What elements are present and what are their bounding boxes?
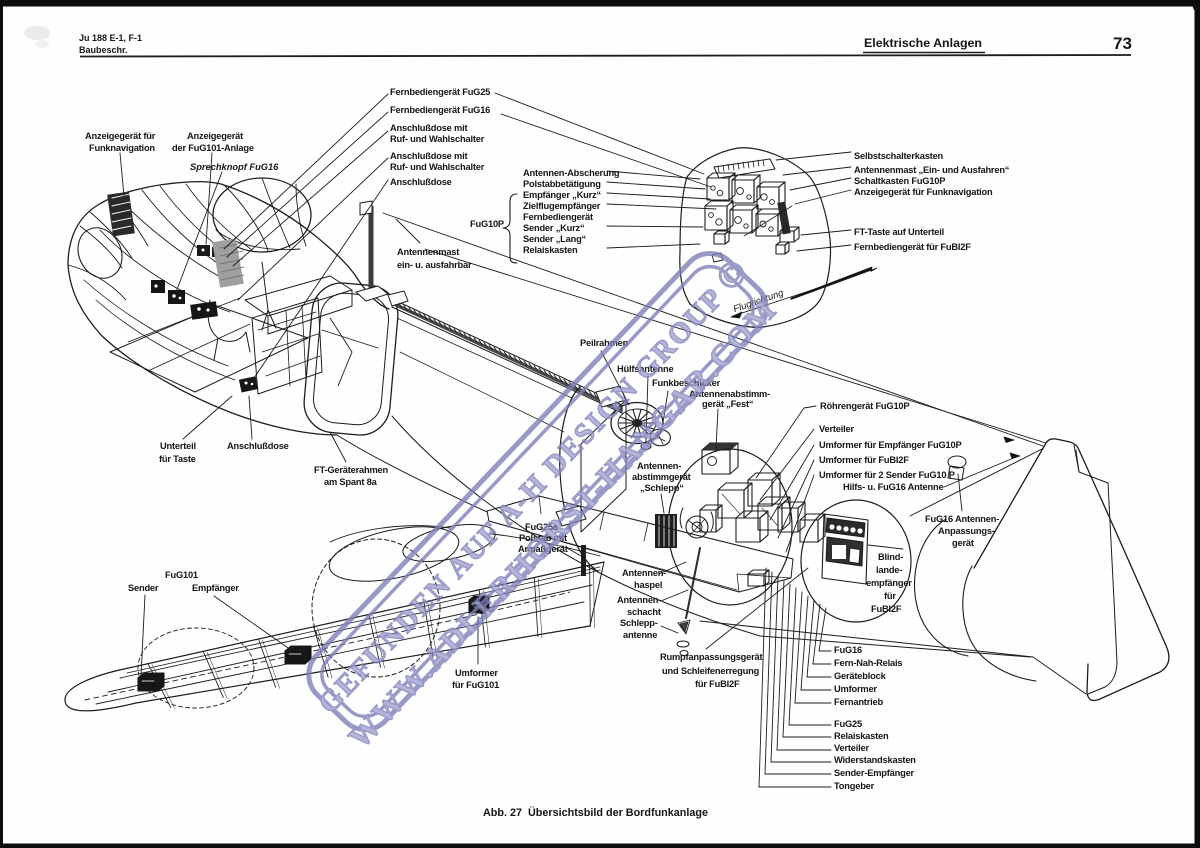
- svg-text:lande-: lande-: [876, 565, 902, 575]
- svg-text:Antennen-Abscherung: Antennen-Abscherung: [523, 168, 620, 178]
- svg-text:Anzeigegerät für: Anzeigegerät für: [85, 131, 156, 141]
- svg-text:schacht: schacht: [627, 607, 661, 617]
- svg-text:abstimmgerät: abstimmgerät: [632, 472, 691, 482]
- svg-text:Röhrengerät FuG10P: Röhrengerät FuG10P: [820, 401, 909, 411]
- svg-text:Anschlußdose: Anschlußdose: [227, 441, 289, 451]
- svg-text:Hilfs- u. FuG16 Antenne: Hilfs- u. FuG16 Antenne: [843, 482, 943, 492]
- svg-text:Fernbediengerät FuG16: Fernbediengerät FuG16: [390, 105, 490, 115]
- svg-text:Anschlußdose: Anschlußdose: [390, 177, 452, 187]
- svg-text:Relaiskasten: Relaiskasten: [523, 245, 578, 255]
- svg-text:Fernbediengerät für FuBI2F: Fernbediengerät für FuBI2F: [854, 242, 971, 252]
- svg-text:Zielflugempfänger: Zielflugempfänger: [523, 201, 601, 211]
- svg-text:Fernbediengerät FuG25: Fernbediengerät FuG25: [390, 87, 490, 97]
- svg-text:Elektrische Anlagen: Elektrische Anlagen: [864, 36, 982, 50]
- svg-text:FuG10P: FuG10P: [470, 219, 504, 229]
- svg-text:FuG25: FuG25: [834, 719, 862, 729]
- svg-text:für FuBI2F: für FuBI2F: [695, 679, 740, 689]
- svg-text:Sender: Sender: [128, 583, 159, 593]
- svg-text:für FuG101: für FuG101: [452, 680, 499, 690]
- svg-text:FuG16 Antennen-: FuG16 Antennen-: [925, 514, 999, 524]
- svg-text:Selbstschalterkasten: Selbstschalterkasten: [854, 151, 944, 161]
- svg-text:Umformer für Empfänger FuG10P: Umformer für Empfänger FuG10P: [819, 440, 961, 450]
- svg-text:Antennen-: Antennen-: [622, 568, 666, 578]
- svg-text:FuG101: FuG101: [165, 570, 198, 580]
- svg-text:Empfänger: Empfänger: [192, 583, 239, 593]
- svg-text:Sender „Kurz“: Sender „Kurz“: [523, 223, 584, 233]
- svg-text:Baubeschr.: Baubeschr.: [79, 45, 128, 55]
- svg-text:Umformer: Umformer: [834, 684, 877, 694]
- svg-text:Peilrahmen: Peilrahmen: [580, 338, 629, 348]
- svg-text:Anzeigegerät für Funknavigatio: Anzeigegerät für Funknavigation: [854, 187, 993, 197]
- svg-text:für Taste: für Taste: [159, 454, 196, 464]
- svg-text:Geräteblock: Geräteblock: [834, 671, 887, 681]
- svg-text:am Spant 8a: am Spant 8a: [324, 477, 378, 487]
- svg-text:Tongeber: Tongeber: [834, 781, 875, 791]
- svg-text:Antennenmast „Ein- und Ausfahr: Antennenmast „Ein- und Ausfahren“: [854, 165, 1009, 175]
- svg-text:Anschlußdose mit: Anschlußdose mit: [390, 151, 467, 161]
- svg-text:Blind-: Blind-: [878, 552, 903, 562]
- svg-text:Ju 188 E-1, F-1: Ju 188 E-1, F-1: [79, 33, 142, 43]
- svg-text:Verteiler: Verteiler: [834, 743, 869, 753]
- svg-text:Abb. 27 Übersichtsbild der Bo: Abb. 27 Übersichtsbild der Bordfunkanlag…: [483, 806, 708, 819]
- svg-text:gerät: gerät: [952, 538, 974, 548]
- svg-text:Polstabbetätigung: Polstabbetätigung: [523, 179, 601, 189]
- svg-text:Ruf- und Wahlschalter: Ruf- und Wahlschalter: [390, 134, 485, 144]
- svg-text:Fern-Nah-Relais: Fern-Nah-Relais: [834, 658, 902, 668]
- svg-text:Relaiskasten: Relaiskasten: [834, 731, 889, 741]
- svg-text:Sprechknopf FuG16: Sprechknopf FuG16: [190, 162, 279, 172]
- svg-text:FuG16: FuG16: [834, 645, 862, 655]
- svg-text:ein- u. ausfahrbar: ein- u. ausfahrbar: [397, 260, 472, 270]
- svg-text:Rumpfanpassungsgerät: Rumpfanpassungsgerät: [660, 652, 763, 662]
- svg-text:FT-Geräterahmen: FT-Geräterahmen: [314, 465, 389, 475]
- svg-text:73: 73: [1113, 34, 1132, 53]
- svg-text:und Schleifenerregung: und Schleifenerregung: [662, 666, 760, 676]
- svg-text:Empfänger „Kurz“: Empfänger „Kurz“: [523, 190, 601, 200]
- svg-text:gerät „Fest“: gerät „Fest“: [702, 399, 753, 409]
- svg-text:Anschlußdose mit: Anschlußdose mit: [390, 123, 467, 133]
- svg-text:Umformer für FuBI2F: Umformer für FuBI2F: [819, 455, 909, 465]
- svg-text:Anzeigegerät: Anzeigegerät: [187, 131, 243, 141]
- svg-text:Antennenmast: Antennenmast: [397, 247, 459, 257]
- svg-text:für: für: [884, 591, 896, 601]
- svg-text:„Schlepp“: „Schlepp“: [640, 483, 684, 493]
- svg-text:Anpassungs-: Anpassungs-: [938, 526, 995, 536]
- svg-text:antenne: antenne: [623, 630, 657, 640]
- svg-text:Schlepp-: Schlepp-: [620, 618, 658, 628]
- svg-text:Fernantrieb: Fernantrieb: [834, 697, 883, 707]
- svg-text:Widerstandskasten: Widerstandskasten: [834, 755, 916, 765]
- svg-text:der FuG101-Anlage: der FuG101-Anlage: [172, 143, 254, 153]
- svg-text:Sender „Lang“: Sender „Lang“: [523, 234, 586, 244]
- svg-text:Umformer für 2 Sender FuG10 P: Umformer für 2 Sender FuG10 P: [819, 470, 955, 480]
- svg-text:empfänger: empfänger: [866, 578, 912, 588]
- svg-text:FuBI2F: FuBI2F: [871, 604, 902, 614]
- svg-text:haspel: haspel: [634, 580, 662, 590]
- svg-text:Antennen-: Antennen-: [617, 595, 661, 605]
- svg-text:Umformer: Umformer: [455, 668, 498, 678]
- svg-text:Schaltkasten FuG10P: Schaltkasten FuG10P: [854, 176, 945, 186]
- svg-text:FT-Taste auf Unterteil: FT-Taste auf Unterteil: [854, 227, 944, 237]
- svg-text:Fernbediengerät: Fernbediengerät: [523, 212, 593, 222]
- svg-text:Unterteil: Unterteil: [160, 441, 196, 451]
- svg-text:Ruf- und Wahlschalter: Ruf- und Wahlschalter: [390, 162, 485, 172]
- svg-text:Verteiler: Verteiler: [819, 424, 854, 434]
- svg-text:Funknavigation: Funknavigation: [89, 143, 155, 153]
- svg-text:Sender-Empfänger: Sender-Empfänger: [834, 768, 915, 778]
